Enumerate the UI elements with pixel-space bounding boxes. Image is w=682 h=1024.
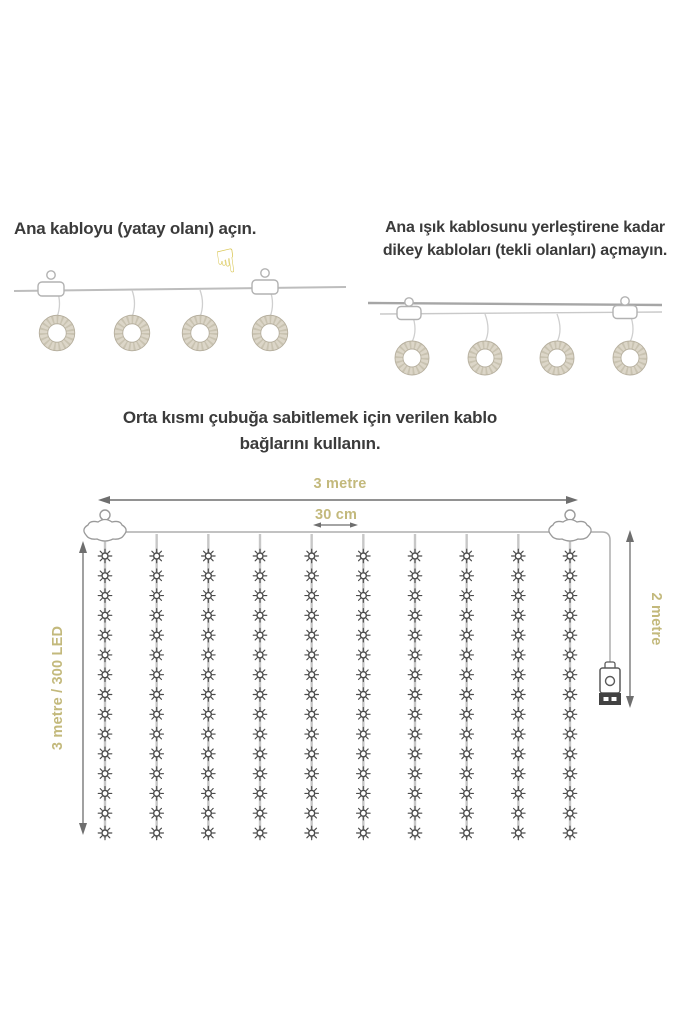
led-icon xyxy=(357,806,371,820)
led-icon xyxy=(98,747,112,761)
led-icon xyxy=(150,806,164,820)
led-icon xyxy=(98,569,112,583)
led-icon xyxy=(150,826,164,840)
led-icon xyxy=(563,767,577,781)
led-icon xyxy=(305,628,319,642)
led-icon xyxy=(305,787,319,801)
led-icon xyxy=(563,707,577,721)
led-icon xyxy=(408,549,422,563)
led-icon xyxy=(150,707,164,721)
led-icon xyxy=(202,668,216,682)
led-icon xyxy=(408,767,422,781)
led-icon xyxy=(408,589,422,603)
led-icon xyxy=(408,609,422,623)
led-icon xyxy=(98,826,112,840)
led-icon xyxy=(357,688,371,702)
led-icon xyxy=(563,668,577,682)
led-icon xyxy=(202,767,216,781)
led-icon xyxy=(253,787,267,801)
led-icon xyxy=(460,747,474,761)
led-icon xyxy=(512,628,526,642)
spacing-label: 30 cm xyxy=(315,507,357,523)
led-icon xyxy=(563,589,577,603)
usb-contact xyxy=(604,697,609,701)
led-icon xyxy=(150,727,164,741)
led-icon xyxy=(563,806,577,820)
led-icon xyxy=(460,767,474,781)
hook-icon xyxy=(261,269,269,277)
led-icon xyxy=(512,826,526,840)
led-icon xyxy=(150,767,164,781)
led-icon xyxy=(202,609,216,623)
led-icon xyxy=(357,609,371,623)
led-icon xyxy=(253,688,267,702)
led-icon xyxy=(408,628,422,642)
led-icon xyxy=(253,707,267,721)
controller-button xyxy=(606,677,615,686)
led-icon xyxy=(305,569,319,583)
hook-icon xyxy=(405,298,413,306)
led-icon xyxy=(512,767,526,781)
led-icon xyxy=(98,609,112,623)
led-icon xyxy=(512,648,526,662)
drop-label: 2 metre xyxy=(648,593,664,646)
led-icon xyxy=(305,648,319,662)
led-icon xyxy=(202,707,216,721)
led-icon xyxy=(150,747,164,761)
led-icon xyxy=(357,549,371,563)
step1-text: Ana kabloyu (yatay olanı) açın. xyxy=(14,219,256,239)
led-icon xyxy=(202,628,216,642)
strand-layer xyxy=(98,534,577,840)
led-icon xyxy=(357,668,371,682)
led-icon xyxy=(563,609,577,623)
led-icon xyxy=(98,628,112,642)
led-icon xyxy=(460,609,474,623)
led-icon xyxy=(408,826,422,840)
led-icon xyxy=(150,628,164,642)
led-icon xyxy=(512,569,526,583)
led-icon xyxy=(150,688,164,702)
led-icon xyxy=(460,806,474,820)
led-icon xyxy=(460,589,474,603)
drop-dimension-arrow xyxy=(626,530,634,708)
led-icon xyxy=(357,767,371,781)
led-icon xyxy=(357,787,371,801)
led-icon xyxy=(253,747,267,761)
led-icon xyxy=(202,826,216,840)
led-icon xyxy=(460,707,474,721)
led-icon xyxy=(150,569,164,583)
cable-clip xyxy=(38,282,64,296)
led-icon xyxy=(460,668,474,682)
led-icon xyxy=(150,589,164,603)
led-icon xyxy=(563,628,577,642)
step2-illustration xyxy=(360,276,682,394)
led-icon xyxy=(98,688,112,702)
step2-text-line2: dikey kabloları (tekli olanları) açmayın… xyxy=(383,239,667,262)
led-icon xyxy=(202,787,216,801)
led-icon xyxy=(563,747,577,761)
led-icon xyxy=(202,569,216,583)
led-icon xyxy=(408,787,422,801)
led-icon xyxy=(150,549,164,563)
led-icon xyxy=(460,648,474,662)
led-icon xyxy=(408,648,422,662)
led-icon xyxy=(98,549,112,563)
led-icon xyxy=(305,707,319,721)
right-cable-clip xyxy=(549,520,591,542)
led-icon xyxy=(408,707,422,721)
led-icon xyxy=(408,668,422,682)
led-icon xyxy=(357,648,371,662)
led-icon xyxy=(408,806,422,820)
led-icon xyxy=(202,549,216,563)
step2-text-line1: Ana ışık kablosunu yerleştirene kadar xyxy=(385,216,665,239)
led-icon xyxy=(98,648,112,662)
drop-wire xyxy=(557,314,560,342)
led-icon xyxy=(563,648,577,662)
led-icon xyxy=(98,589,112,603)
led-icon xyxy=(253,609,267,623)
step3-text-line2: bağlarını kullanın. xyxy=(240,431,381,457)
right-hook-icon xyxy=(565,510,575,520)
led-icon xyxy=(98,806,112,820)
led-icon xyxy=(460,549,474,563)
string-length-dimension-arrow xyxy=(79,541,87,835)
left-hook-icon xyxy=(100,510,110,520)
led-icon xyxy=(305,767,319,781)
led-icon xyxy=(98,668,112,682)
led-icon xyxy=(253,648,267,662)
led-icon xyxy=(202,727,216,741)
spacing-dimension-arrow xyxy=(313,522,358,527)
led-icon xyxy=(563,569,577,583)
led-icon xyxy=(202,589,216,603)
led-icon xyxy=(563,688,577,702)
led-icon xyxy=(253,806,267,820)
led-icon xyxy=(305,826,319,840)
led-icon xyxy=(512,589,526,603)
led-icon xyxy=(98,727,112,741)
led-icon xyxy=(150,609,164,623)
led-icon xyxy=(512,707,526,721)
led-icon xyxy=(305,609,319,623)
led-icon xyxy=(512,806,526,820)
led-icon xyxy=(253,767,267,781)
led-icon xyxy=(357,628,371,642)
drop-wire xyxy=(132,290,135,317)
led-icon xyxy=(202,688,216,702)
led-icon xyxy=(408,688,422,702)
led-icon xyxy=(357,569,371,583)
width-dimension-arrow xyxy=(98,496,578,504)
cable-clip xyxy=(252,280,278,294)
led-icon xyxy=(253,727,267,741)
led-icon xyxy=(512,609,526,623)
hook-icon xyxy=(47,271,55,279)
main-cable xyxy=(105,532,610,662)
led-icon xyxy=(357,589,371,603)
led-icon xyxy=(460,628,474,642)
led-icon xyxy=(150,648,164,662)
led-icon xyxy=(253,569,267,583)
led-icon xyxy=(305,727,319,741)
led-icon xyxy=(253,628,267,642)
led-icon xyxy=(460,569,474,583)
led-icon xyxy=(202,806,216,820)
led-icon xyxy=(98,707,112,721)
led-icon xyxy=(98,787,112,801)
led-icon xyxy=(357,727,371,741)
led-icon xyxy=(460,826,474,840)
led-icon xyxy=(357,826,371,840)
led-icon xyxy=(512,668,526,682)
left-cable-clip xyxy=(84,520,126,542)
led-icon xyxy=(305,668,319,682)
led-icon xyxy=(512,688,526,702)
led-icon xyxy=(512,549,526,563)
led-icon xyxy=(98,767,112,781)
led-icon xyxy=(305,747,319,761)
drop-wire xyxy=(485,314,488,342)
led-icon xyxy=(563,549,577,563)
instruction-sheet: Ana kabloyu (yatay olanı) açın. ☟ Ana ış… xyxy=(0,0,682,1024)
cable-clip xyxy=(613,306,637,319)
led-icon xyxy=(253,668,267,682)
led-icon xyxy=(150,668,164,682)
led-icon xyxy=(305,549,319,563)
led-icon xyxy=(305,806,319,820)
step1-illustration xyxy=(0,246,350,371)
step3-text-line1: Orta kısmı çubuğa sabitlemek için verile… xyxy=(123,405,497,431)
led-icon xyxy=(408,569,422,583)
step1-instruction: Ana kabloyu (yatay olanı) açın. xyxy=(14,219,256,239)
led-icon xyxy=(408,727,422,741)
width-label: 3 metre xyxy=(314,476,367,492)
step3-instruction: Orta kısmı çubuğa sabitlemek için verile… xyxy=(110,405,510,458)
led-icon xyxy=(563,727,577,741)
led-icon xyxy=(150,787,164,801)
usb-plug-icon xyxy=(599,693,621,705)
curtain-diagram: 3 metre 30 cm 3 metre / 300 LED xyxy=(0,462,682,864)
led-icon xyxy=(253,826,267,840)
led-icon xyxy=(563,787,577,801)
usb-controller xyxy=(599,662,621,705)
led-icon xyxy=(460,727,474,741)
step2-instruction: Ana ışık kablosunu yerleştirene kadar di… xyxy=(369,216,681,262)
led-icon xyxy=(512,747,526,761)
led-icon xyxy=(512,787,526,801)
led-icon xyxy=(460,787,474,801)
drop-wire xyxy=(200,290,203,317)
led-icon xyxy=(305,688,319,702)
led-icon xyxy=(305,589,319,603)
led-icon xyxy=(563,826,577,840)
usb-contact xyxy=(612,697,617,701)
led-icon xyxy=(357,707,371,721)
hook-icon xyxy=(621,297,629,305)
led-icon xyxy=(253,589,267,603)
led-icon xyxy=(512,727,526,741)
led-icon xyxy=(253,549,267,563)
led-icon xyxy=(202,747,216,761)
led-icon xyxy=(408,747,422,761)
led-icon xyxy=(357,747,371,761)
cable-clip xyxy=(397,307,421,320)
string-length-label: 3 metre / 300 LED xyxy=(50,626,66,750)
led-icon xyxy=(460,688,474,702)
led-icon xyxy=(202,648,216,662)
